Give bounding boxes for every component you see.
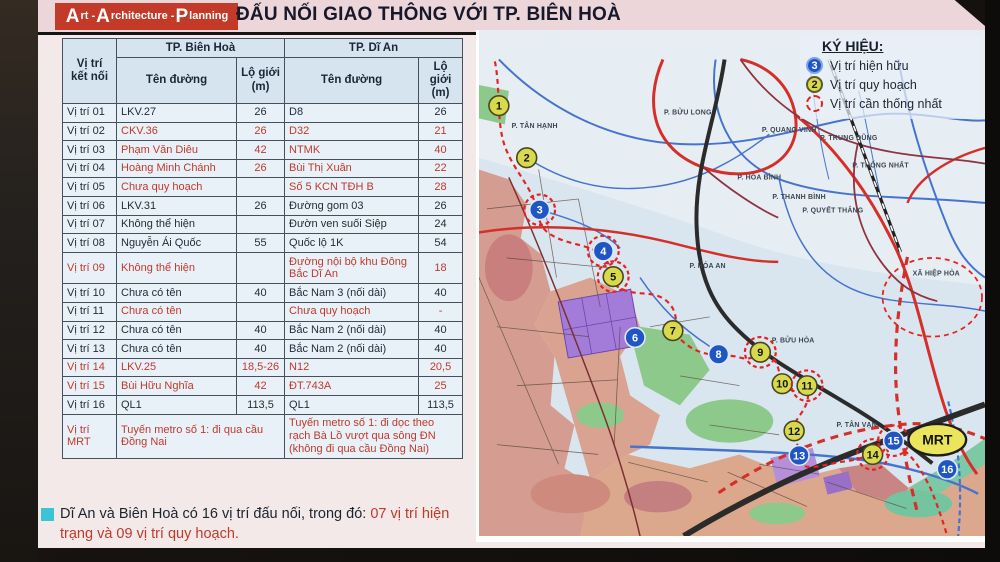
cell-da-width: 26 — [419, 103, 463, 122]
ward-label: P. THANH BÌNH — [772, 192, 825, 201]
ward-label: XÃ HIỆP HÒA — [913, 269, 960, 278]
cell-bh-width: 40 — [237, 321, 285, 340]
table-row-mrt: Vị trí MRT Tuyến metro số 1: đi qua cầu … — [63, 414, 463, 458]
cell-position: Vị trí 02 — [63, 122, 117, 141]
cell-da-width: 40 — [419, 340, 463, 359]
cell-bh-road: Chưa có tên — [117, 284, 237, 303]
slide-header: Art - Architecture - Planning ĐẤU NỐI GI… — [38, 0, 985, 32]
col-header-position: Vị trí kết nối — [63, 39, 117, 104]
marker-number: 13 — [793, 450, 805, 462]
marker-number: 9 — [757, 347, 763, 359]
marker-number: 16 — [941, 464, 953, 476]
cell-position: Vị trí 10 — [63, 284, 117, 303]
cell-bh-metro: Tuyến metro số 1: đi qua cầu Đồng Nai — [117, 414, 285, 458]
cell-bh-width: 42 — [237, 141, 285, 160]
cell-position: Vị trí 07 — [63, 215, 117, 234]
marker-number: 4 — [600, 246, 606, 258]
legend-label: Vị trí quy hoạch — [830, 78, 917, 92]
ward-label: P. HÒA BÌNH — [737, 172, 781, 181]
cell-position: Vị trí 16 — [63, 396, 117, 415]
table-row: Vị trí 07Không thể hiệnĐườn ven suối Siệ… — [63, 215, 463, 234]
cell-da-width: 40 — [419, 284, 463, 303]
table-row: Vị trí 15Bùi Hữu Nghĩa42ĐT.743A25 — [63, 377, 463, 396]
table-row: Vị trí 16QL1113,5QL1113,5 — [63, 396, 463, 415]
cell-position: Vị trí 04 — [63, 159, 117, 178]
cell-da-road: Quốc lộ 1K — [285, 234, 419, 253]
marker-number: 11 — [801, 381, 813, 393]
ward-label: P. TRUNG DŨNG — [820, 133, 877, 142]
cell-bh-width: 26 — [237, 103, 285, 122]
cell-da-road: Đường gom 03 — [285, 197, 419, 216]
marker-number: 7 — [670, 326, 676, 338]
cell-bh-width: 42 — [237, 377, 285, 396]
logo-text: lanning — [189, 11, 228, 22]
marker-number: 10 — [776, 379, 788, 391]
cell-position: Vị trí 12 — [63, 321, 117, 340]
table-row: Vị trí 02CKV.3626D3221 — [63, 122, 463, 141]
cell-da-road: ĐT.743A — [285, 377, 419, 396]
cell-da-road: Số 5 KCN TĐH B — [285, 178, 419, 197]
ward-label: P. HÓA AN — [690, 261, 726, 270]
cell-bh-road: Bùi Hữu Nghĩa — [117, 377, 237, 396]
cell-da-width: 24 — [419, 215, 463, 234]
table-header: Vị trí kết nối TP. Biên Hoà TP. Dĩ An Tê… — [63, 39, 463, 104]
cell-bh-road: Chưa quy hoạch — [117, 178, 237, 197]
company-logo: Art - Architecture - Planning — [55, 3, 238, 30]
ward-label: P. TÂN VẠN — [837, 420, 877, 429]
photo-background: Art - Architecture - Planning ĐẤU NỐI GI… — [0, 0, 1000, 562]
cell-da-width: 40 — [419, 321, 463, 340]
col-header-width-bh: Lộ giới (m) — [237, 58, 285, 104]
note-text: Dĩ An và Biên Hoà có 16 vị trí đấu nối, … — [60, 505, 481, 544]
map-legend: KÝ HIỆU: 3Vị trí hiện hữu2Vị trí quy hoạ… — [800, 35, 980, 119]
cell-da-road: N12 — [285, 358, 419, 377]
ward-label: P. QUANG VINH — [762, 127, 817, 134]
cell-bh-width: 55 — [237, 234, 285, 253]
marker-number: 5 — [610, 272, 616, 284]
cell-da-width: 28 — [419, 178, 463, 197]
cell-bh-road: Hoàng Minh Chánh — [117, 159, 237, 178]
mrt-label: MRT — [922, 432, 953, 448]
marker-number: 6 — [632, 333, 638, 345]
marker-number: 1 — [496, 101, 502, 113]
cell-da-road: D8 — [285, 103, 419, 122]
table-row: Vị trí 04Hoàng Minh Chánh26Bùi Thị Xuân2… — [63, 159, 463, 178]
cell-position: Vị trí 11 — [63, 302, 117, 321]
cell-position: Vị trí 13 — [63, 340, 117, 359]
cell-da-width: 22 — [419, 159, 463, 178]
page-title: ĐẤU NỐI GIAO THÔNG VỚI TP. BIÊN HOÀ — [236, 4, 621, 26]
presentation-slide: Art - Architecture - Planning ĐẤU NỐI GI… — [38, 0, 985, 548]
ward-label: P. TÂN HẠNH — [512, 121, 558, 130]
cell-bh-road: LKV.25 — [117, 358, 237, 377]
cell-bh-width: 26 — [237, 197, 285, 216]
legend-items: 3Vị trí hiện hữu2Vị trí quy hoạchVị trí … — [806, 57, 974, 112]
cell-bh-width — [237, 215, 285, 234]
col-header-road-bh: Tên đường — [117, 58, 237, 104]
cell-position: Vị trí 08 — [63, 234, 117, 253]
cell-bh-width: 40 — [237, 340, 285, 359]
cell-da-road: Chưa quy hoạch — [285, 302, 419, 321]
col-group-dian: TP. Dĩ An — [285, 39, 463, 58]
cell-da-road: Bùi Thị Xuân — [285, 159, 419, 178]
table-row: Vị trí 11Chưa có tênChưa quy hoạch- — [63, 302, 463, 321]
cell-da-road: NTMK — [285, 141, 419, 160]
logo-initial: P — [175, 7, 188, 26]
table-row: Vị trí 05Chưa quy hoạchSố 5 KCN TĐH B28 — [63, 178, 463, 197]
cell-bh-width: 113,5 — [237, 396, 285, 415]
cell-da-width: 26 — [419, 197, 463, 216]
cell-da-width: - — [419, 302, 463, 321]
logo-text: rchitecture - — [111, 11, 175, 22]
cell-bh-road: Chưa có tên — [117, 340, 237, 359]
cell-da-road: Bắc Nam 2 (nối dài) — [285, 340, 419, 359]
cell-bh-road: CKV.36 — [117, 122, 237, 141]
cell-position: Vị trí 15 — [63, 377, 117, 396]
logo-initial: A — [96, 7, 110, 26]
legend-item: 2Vị trí quy hoạch — [806, 76, 974, 93]
legend-label: Vị trí cần thống nhất — [830, 97, 942, 111]
room-wall — [0, 0, 38, 562]
marker-number: 14 — [867, 449, 879, 461]
cell-bh-width — [237, 253, 285, 284]
col-header-width-da: Lộ giới (m) — [419, 58, 463, 104]
cell-bh-width: 40 — [237, 284, 285, 303]
cell-da-width: 25 — [419, 377, 463, 396]
cell-bh-width — [237, 302, 285, 321]
cell-da-width: 113,5 — [419, 396, 463, 415]
cell-da-road: Bắc Nam 3 (nối dài) — [285, 284, 419, 303]
marker-number: 8 — [716, 349, 722, 361]
cell-bh-road: Không thể hiện — [117, 215, 237, 234]
marker-number: 2 — [524, 153, 530, 165]
table-row: Vị trí 10Chưa có tên40Bắc Nam 3 (nối dài… — [63, 284, 463, 303]
table-row: Vị trí 01LKV.2726D826 — [63, 103, 463, 122]
cell-bh-road: Chưa có tên — [117, 321, 237, 340]
note-bullet-icon — [41, 508, 54, 521]
cell-position: Vị trí 09 — [63, 253, 117, 284]
cell-da-width: 54 — [419, 234, 463, 253]
ward-label: P. BỬU LONG — [664, 108, 712, 117]
table-row: Vị trí 12Chưa có tên40Bắc Nam 2 (nối dài… — [63, 321, 463, 340]
note-text-black: Dĩ An và Biên Hoà có 16 vị trí đấu nối, … — [60, 506, 370, 522]
table-row: Vị trí 09Không thể hiệnĐường nội bộ khu … — [63, 253, 463, 284]
cell-da-width: 40 — [419, 141, 463, 160]
cell-position: Vị trí 06 — [63, 197, 117, 216]
cell-bh-road: Nguyễn Ái Quốc — [117, 234, 237, 253]
cell-bh-road: Không thể hiện — [117, 253, 237, 284]
connection-table: Vị trí kết nối TP. Biên Hoà TP. Dĩ An Tê… — [62, 38, 463, 459]
cell-da-metro: Tuyến metro số 1: đi dọc theo rạch Bà Lồ… — [285, 414, 463, 458]
table-row: Vị trí 13Chưa có tên40Bắc Nam 2 (nối dài… — [63, 340, 463, 359]
existing-marker-icon: 3 — [806, 57, 823, 74]
table-row: Vị trí 14LKV.2518,5-26N1220,5 — [63, 358, 463, 377]
cell-da-width: 18 — [419, 253, 463, 284]
cell-da-width: 20,5 — [419, 358, 463, 377]
unify-marker-icon — [806, 95, 823, 112]
planning-map: P. TÂN HẠNHP. BỬU LONGP. QUANG VINHP. TR… — [476, 30, 985, 542]
col-group-bienhoa: TP. Biên Hoà — [117, 39, 285, 58]
cell-da-width: 21 — [419, 122, 463, 141]
legend-item: 3Vị trí hiện hữu — [806, 57, 974, 74]
logo-text: rt - — [80, 11, 95, 22]
cell-bh-road: LKV.27 — [117, 103, 237, 122]
table-row: Vị trí 08Nguyễn Ái Quốc55Quốc lộ 1K54 — [63, 234, 463, 253]
table-row: Vị trí 03Phạm Văn Diêu42NTMK40 — [63, 141, 463, 160]
cell-bh-width: 26 — [237, 122, 285, 141]
table-row: Vị trí 06LKV.3126Đường gom 0326 — [63, 197, 463, 216]
cell-da-road: Bắc Nam 2 (nối dài) — [285, 321, 419, 340]
cell-da-road: Đường nội bộ khu Đông Bắc Dĩ An — [285, 253, 419, 284]
cell-position: Vị trí 14 — [63, 358, 117, 377]
cell-bh-road: Chưa có tên — [117, 302, 237, 321]
legend-item: Vị trí cần thống nhất — [806, 95, 974, 112]
logo-initial: A — [66, 7, 80, 26]
ward-label: P. BỬU HÒA — [772, 335, 815, 344]
marker-number: 15 — [887, 436, 899, 448]
marker-number: 3 — [537, 205, 543, 217]
cell-da-road: Đườn ven suối Siệp — [285, 215, 419, 234]
cell-bh-road: Phạm Văn Diêu — [117, 141, 237, 160]
cell-position: Vị trí 01 — [63, 103, 117, 122]
cell-bh-road: LKV.31 — [117, 197, 237, 216]
cell-position: Vị trí 05 — [63, 178, 117, 197]
cell-da-road: QL1 — [285, 396, 419, 415]
cell-position: Vị trí MRT — [63, 414, 117, 458]
marker-number: 12 — [788, 426, 800, 438]
cell-bh-road: QL1 — [117, 396, 237, 415]
cell-bh-width: 18,5-26 — [237, 358, 285, 377]
planned-marker-icon: 2 — [806, 76, 823, 93]
legend-title: KÝ HIỆU: — [822, 38, 974, 54]
summary-note: Dĩ An và Biên Hoà có 16 vị trí đấu nối, … — [41, 505, 481, 544]
cell-bh-width: 26 — [237, 159, 285, 178]
legend-label: Vị trí hiện hữu — [830, 59, 909, 73]
col-header-road-da: Tên đường — [285, 58, 419, 104]
cell-position: Vị trí 03 — [63, 141, 117, 160]
cell-bh-width — [237, 178, 285, 197]
cell-da-road: D32 — [285, 122, 419, 141]
